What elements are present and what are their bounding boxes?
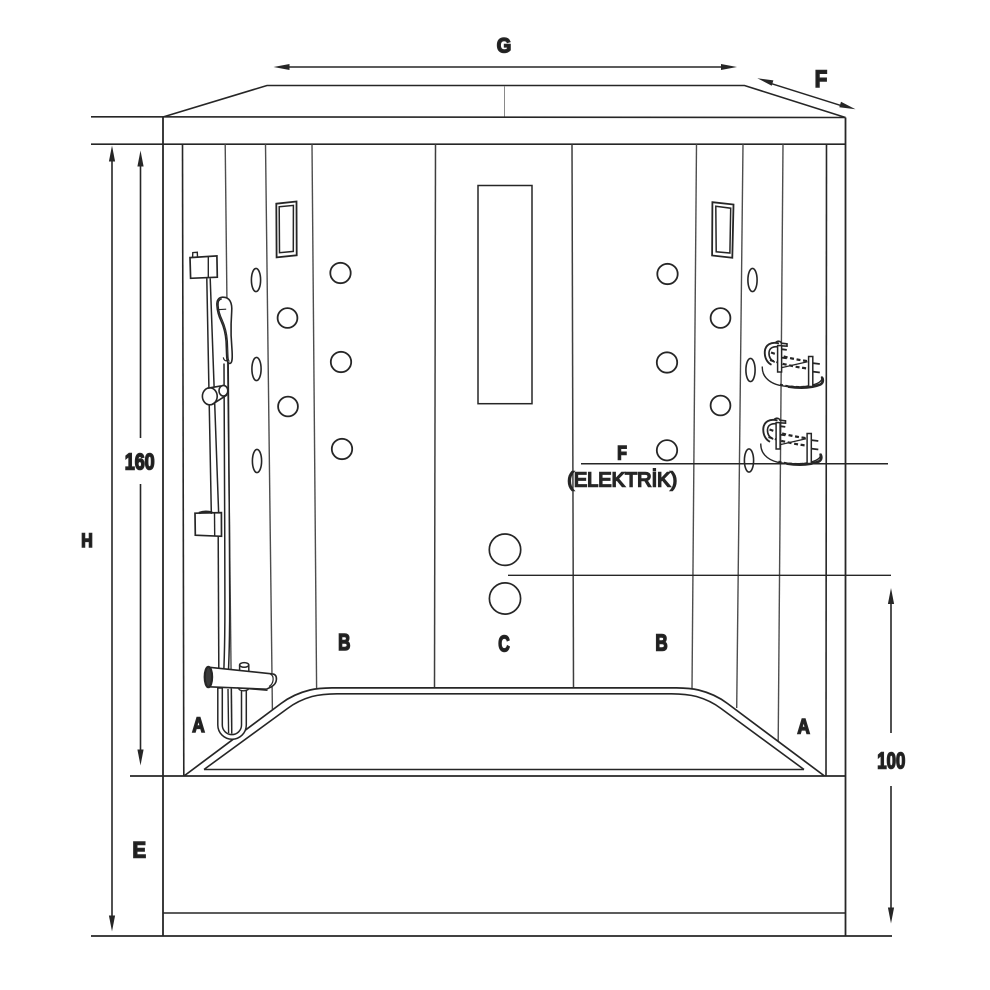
svg-text:(ELEKTRİK): (ELEKTRİK) [567,469,677,492]
svg-text:A: A [192,713,205,737]
svg-text:F: F [815,66,828,93]
svg-text:H: H [81,530,93,552]
svg-text:B: B [338,629,350,655]
svg-text:A: A [797,715,810,739]
svg-text:E: E [133,838,147,863]
svg-text:G: G [497,34,512,58]
svg-text:160: 160 [125,449,155,475]
svg-text:C: C [498,631,510,657]
svg-text:F: F [617,443,627,464]
svg-text:100: 100 [877,747,905,773]
svg-text:B: B [655,630,667,656]
